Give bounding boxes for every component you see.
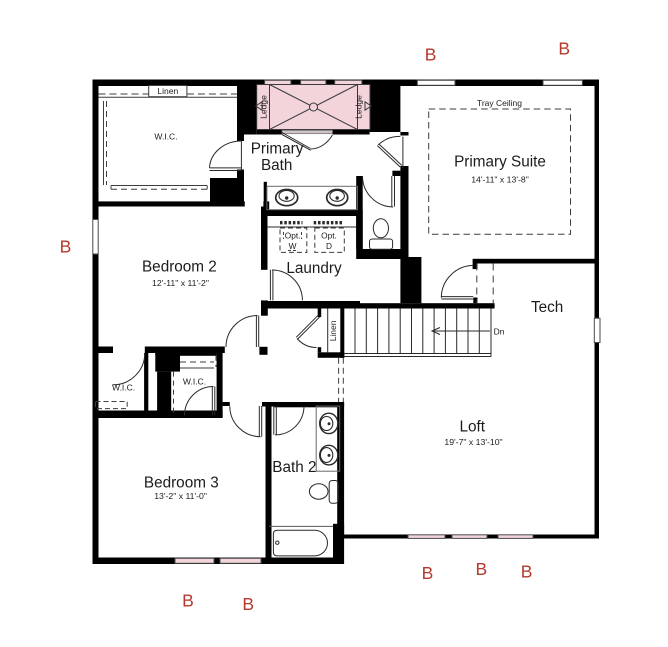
svg-text:Opt.: Opt. (285, 231, 301, 241)
svg-text:12'-11" x 11'-2": 12'-11" x 11'-2" (152, 278, 209, 288)
svg-text:B: B (422, 563, 434, 583)
svg-text:Dn: Dn (494, 326, 505, 336)
svg-text:19'-7" x 13'-10": 19'-7" x 13'-10" (444, 437, 502, 447)
svg-text:B: B (182, 591, 194, 611)
svg-text:Tech: Tech (531, 299, 563, 316)
svg-text:14'-11" x 13'-8": 14'-11" x 13'-8" (471, 175, 529, 185)
svg-text:Tray Ceiling: Tray Ceiling (477, 98, 522, 108)
svg-text:Laundry: Laundry (286, 260, 342, 277)
svg-text:B: B (425, 45, 437, 65)
svg-text:Linen: Linen (328, 320, 338, 341)
svg-text:Bath: Bath (261, 157, 292, 174)
svg-text:Opt.: Opt. (321, 231, 337, 241)
svg-text:Ledge: Ledge (354, 95, 364, 119)
svg-text:B: B (521, 561, 533, 581)
svg-text:W: W (289, 241, 297, 251)
svg-text:Linen: Linen (157, 86, 178, 96)
svg-text:B: B (242, 594, 254, 614)
svg-text:Bedroom 3: Bedroom 3 (144, 474, 219, 491)
svg-text:Primary: Primary (251, 140, 304, 157)
svg-text:W.I.C.: W.I.C. (183, 377, 206, 387)
svg-text:Primary Suite: Primary Suite (454, 154, 546, 171)
svg-text:Bath 2: Bath 2 (272, 459, 316, 476)
svg-text:B: B (60, 237, 72, 257)
svg-text:W.I.C.: W.I.C. (112, 383, 135, 393)
svg-text:13'-2" x 11'-0": 13'-2" x 11'-0" (154, 491, 207, 501)
svg-text:Bedroom 2: Bedroom 2 (142, 258, 217, 275)
svg-text:B: B (475, 559, 487, 579)
svg-text:D: D (326, 241, 332, 251)
svg-text:Ledge: Ledge (259, 95, 269, 119)
svg-text:W.I.C.: W.I.C. (154, 131, 177, 141)
svg-text:Loft: Loft (459, 419, 485, 436)
svg-text:B: B (558, 39, 570, 59)
